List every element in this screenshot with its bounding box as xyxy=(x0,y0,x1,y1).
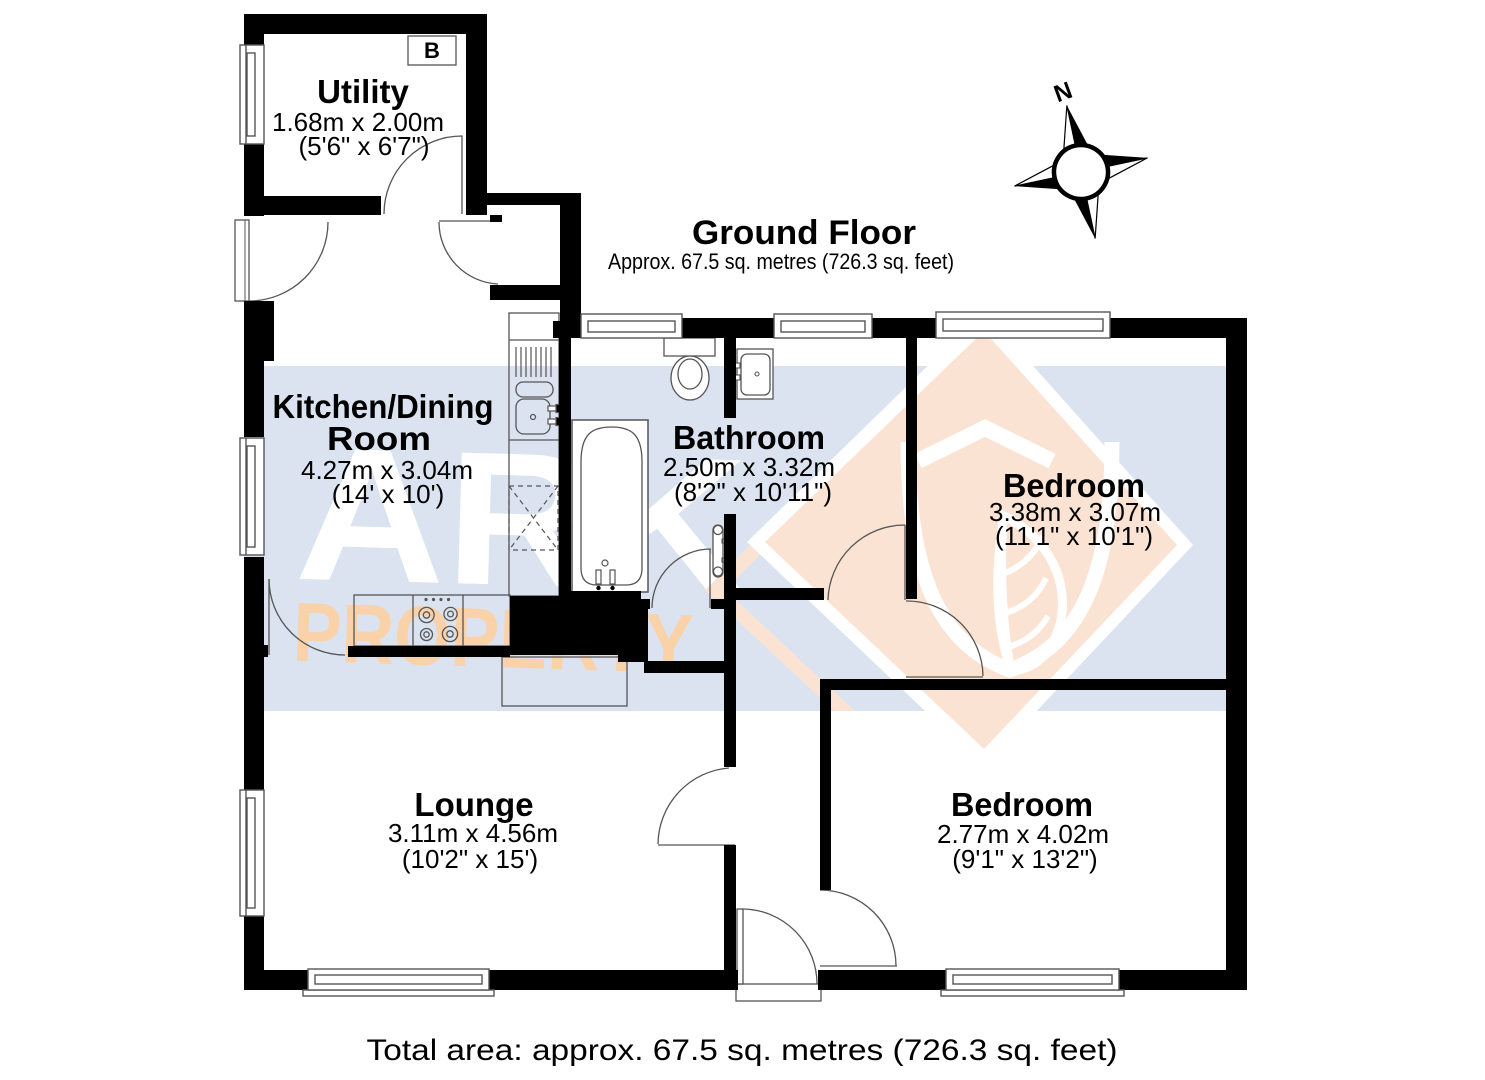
svg-text:B: B xyxy=(424,38,440,63)
svg-text:(11'1" x 10'1"): (11'1" x 10'1") xyxy=(995,521,1153,551)
svg-text:(14' x 10'): (14' x 10') xyxy=(332,479,445,509)
svg-text:Ground Floor: Ground Floor xyxy=(692,214,916,252)
svg-text:Utility: Utility xyxy=(317,73,409,110)
svg-text:Bedroom: Bedroom xyxy=(951,786,1093,823)
svg-text:(8'2" x 10'11"): (8'2" x 10'11") xyxy=(674,477,832,507)
svg-text:Room: Room xyxy=(327,420,431,457)
svg-text:Total area: approx. 67.5 sq. m: Total area: approx. 67.5 sq. metres (726… xyxy=(367,1034,1118,1067)
svg-text:(10'2" x 15'): (10'2" x 15') xyxy=(402,844,538,874)
svg-text:Approx. 67.5 sq. metres (726.3: Approx. 67.5 sq. metres (726.3 sq. feet) xyxy=(608,249,954,274)
svg-text:(9'1" x 13'2"): (9'1" x 13'2") xyxy=(952,844,1097,874)
svg-text:Bathroom: Bathroom xyxy=(673,419,825,456)
svg-text:(5'6" x 6'7"): (5'6" x 6'7") xyxy=(299,131,430,161)
